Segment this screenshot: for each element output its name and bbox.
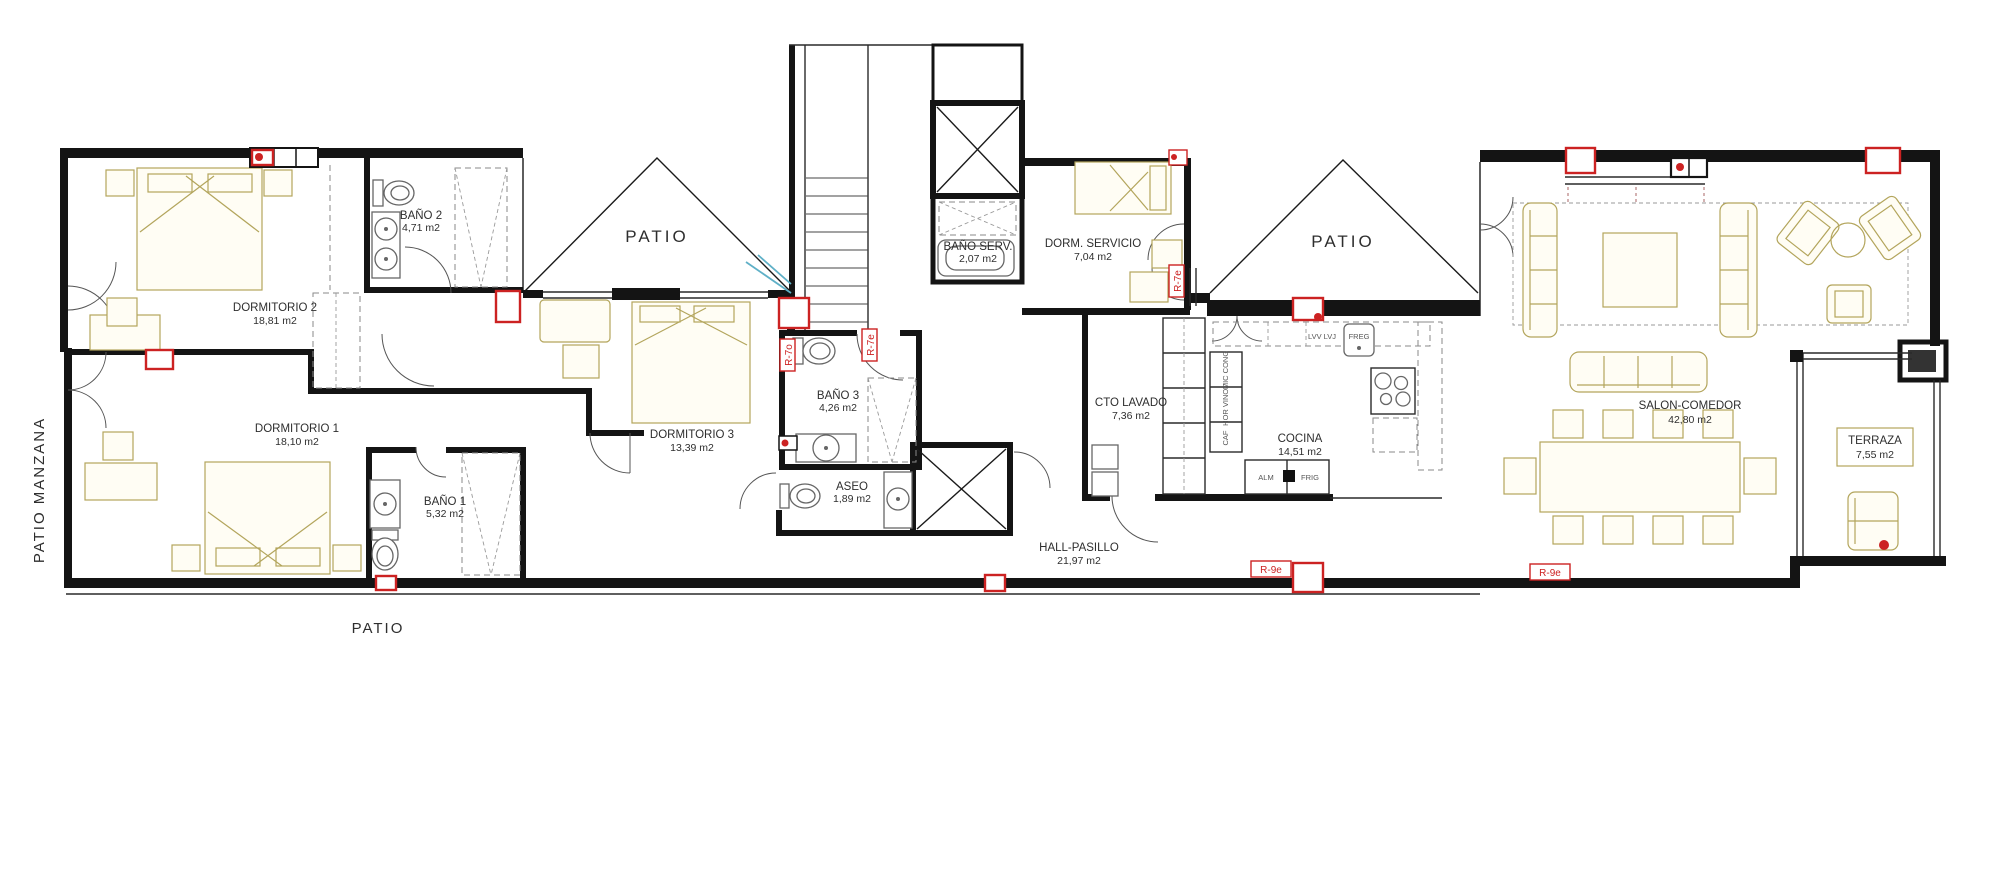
room-area-aseo: 1,89 m2 [833,493,871,505]
kitchen-label-mic-cong: MIC CONG [1221,351,1230,389]
room-label-bano2: BAÑO 2 [400,209,442,222]
room-label-dormitorio1: DORMITORIO 1 [255,423,339,435]
radiator-label-r7e-bano3: R-7e [866,334,877,356]
kitchen-label-lvv-lvj: LVV LVJ [1308,332,1336,341]
room-label-bano-servicio: BAÑO SERV. [943,240,1012,253]
toilet-icon [373,180,414,206]
kitchen-label-caf: CAF [1221,430,1230,445]
room-area-cto-lavado: 7,36 m2 [1112,410,1150,422]
small-marker-dorm-servicio [1169,150,1187,165]
armchair-group [1775,194,1923,323]
cooktop-icon [1371,368,1415,414]
kitchen-label-hor-vinot: HOR VINOT [1221,384,1230,426]
kitchen-label-alm: ALM [1258,473,1273,482]
patio-manzana-label: PATIO MANZANA [31,417,48,563]
terraza [1790,350,1913,556]
double-sink-icon [372,212,400,278]
floor-plan: R-7o R-7e R-7e R-9e R-9e DORMITORIO 2 18… [0,0,2000,869]
room-area-dorm-servicio: 7,04 m2 [1074,251,1112,263]
room-label-bano1: BAÑO 1 [424,495,466,508]
window-marker-cells-salon [1671,158,1707,177]
room-label-salon-comedor: SALON-COMEDOR [1639,400,1742,412]
window-marker-cells-top-left [250,148,318,167]
radiator-label-r9e-2: R-9e [1539,568,1561,579]
sink-icon [796,434,856,462]
terraza-red-dot [1879,540,1889,550]
room-area-cocina: 14,51 m2 [1278,446,1322,458]
sink-icon [370,480,400,528]
room-label-dormitorio3: DORMITORIO 3 [650,429,734,441]
shower-icon [868,378,916,462]
toilet-icon [793,338,835,364]
sofa-left [1523,203,1557,337]
radiator-label-r7e-dorm-servicio: R-7e [1173,270,1184,292]
room-area-bano3: 4,26 m2 [819,402,857,414]
room-area-hall-pasillo: 21,97 m2 [1057,555,1101,567]
shower-icon [462,453,520,575]
dormitorio3-furniture [540,300,750,423]
kitchen-label-freg: FREG [1349,332,1370,341]
room-label-dormitorio2: DORMITORIO 2 [233,302,317,314]
room-label-dorm-servicio: DORM. SERVICIO [1045,238,1141,250]
patio-bottom-label: PATIO [352,620,405,637]
patio-triangle2-label: PATIO [1311,232,1375,251]
bano-servicio [933,196,1022,282]
radiator-label-r7o: R-7o [784,344,795,366]
kitchen-label-frig: FRIG [1301,473,1319,482]
shower-icon [455,168,507,287]
room-area-dormitorio2: 18,81 m2 [253,315,297,327]
dining-set [1504,410,1776,544]
patio-triangle1-label: PATIO [625,227,689,246]
room-area-bano-servicio: 2,07 m2 [959,253,997,265]
dormitorio1-furniture [85,432,361,574]
sofa-right [1720,203,1757,337]
toilet-icon [780,484,820,508]
radiator-label-r9e-1: R-9e [1260,565,1282,576]
room-label-bano3: BAÑO 3 [817,389,859,402]
room-area-salon-comedor: 42,80 m2 [1668,414,1712,426]
terraza-sofa [1848,492,1898,550]
room-area-dormitorio3: 13,39 m2 [670,442,714,454]
room-label-cocina: COCINA [1278,433,1323,445]
room-label-terraza: TERRAZA [1848,435,1902,447]
room-label-aseo: ASEO [836,481,868,493]
sink-icon [884,472,912,528]
toilet-icon [372,530,398,570]
cocina-fixtures [1210,322,1442,498]
room-area-dormitorio1: 18,10 m2 [275,436,319,448]
room-area-terraza: 7,55 m2 [1856,449,1894,461]
elevator-shaft-bottom [913,445,1010,533]
tall-cabinet-column [1163,318,1205,494]
room-label-cto-lavado: CTO LAVADO [1095,397,1167,409]
room-label-hall-pasillo: HALL-PASILLO [1039,542,1119,554]
sofa-horizontal [1570,352,1707,392]
salon-window [1565,177,1705,202]
dorm-servicio-furniture [1075,162,1182,302]
elevator-shaft-top [933,45,1022,196]
room-area-bano2: 4,71 m2 [402,222,440,234]
room-area-bano1: 5,32 m2 [426,508,464,520]
stair-direction-arrow [746,255,791,293]
